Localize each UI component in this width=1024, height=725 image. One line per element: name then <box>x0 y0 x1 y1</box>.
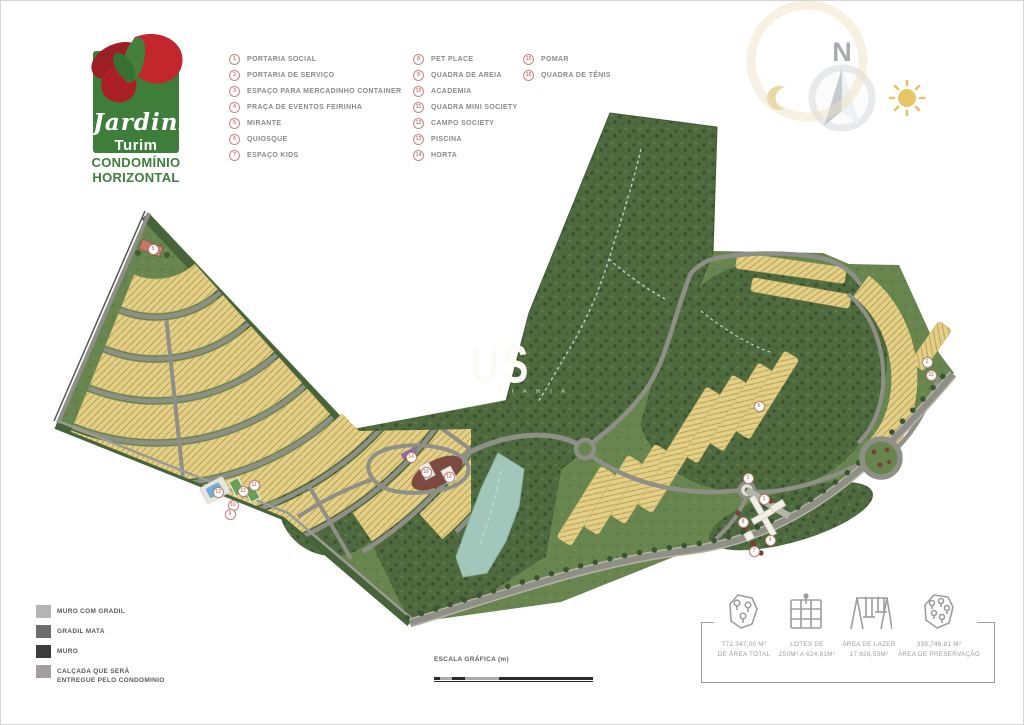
masterplan-poster: Jardins Turim CONDOMÍNIO HORIZONTAL 1 PO… <box>0 0 1024 725</box>
scale-bar <box>434 677 604 682</box>
roundabout-large <box>862 439 900 477</box>
material-swatch <box>36 665 51 678</box>
stat-label: ÁREA DE PRESERVAÇÃO <box>893 650 985 660</box>
material-label: CALÇADA QUE SERÁ ENTREGUE PELO CONDOMINI… <box>57 665 165 685</box>
area-stats-box: 772.347,00 M² DE ÁREA TOTAL LOTES DE 250… <box>701 589 995 693</box>
preservation-map-icon <box>916 589 962 635</box>
scale-ticks <box>434 667 604 676</box>
materials-legend-item: GRADIL MATA <box>36 625 165 639</box>
graphic-scale: ESCALA GRÁFICA (m) <box>434 656 604 682</box>
materials-legend-item: MURO <box>36 645 165 659</box>
materials-legend-item: MURO COM GRADIL <box>36 605 165 619</box>
material-label: MURO COM GRADIL <box>57 605 125 616</box>
material-swatch <box>36 625 51 638</box>
material-swatch <box>36 645 51 658</box>
materials-legend-item: CALÇADA QUE SERÁ ENTREGUE PELO CONDOMINI… <box>36 665 165 685</box>
playground-swing-icon <box>846 589 892 635</box>
materials-legend: MURO COM GRADIL GRADIL MATA MURO CALÇADA… <box>36 605 165 691</box>
material-label: MURO <box>57 645 78 656</box>
faint-logo-arc <box>751 5 863 117</box>
roundabout-small <box>576 440 594 458</box>
scale-title: ESCALA GRÁFICA (m) <box>434 656 604 663</box>
material-swatch <box>36 605 51 618</box>
material-label: GRADIL MATA <box>57 625 105 636</box>
stat-value: 339.746,81 M² <box>893 640 985 650</box>
stat-preservation-area: 339.746,81 M² ÁREA DE PRESERVAÇÃO <box>893 589 985 660</box>
